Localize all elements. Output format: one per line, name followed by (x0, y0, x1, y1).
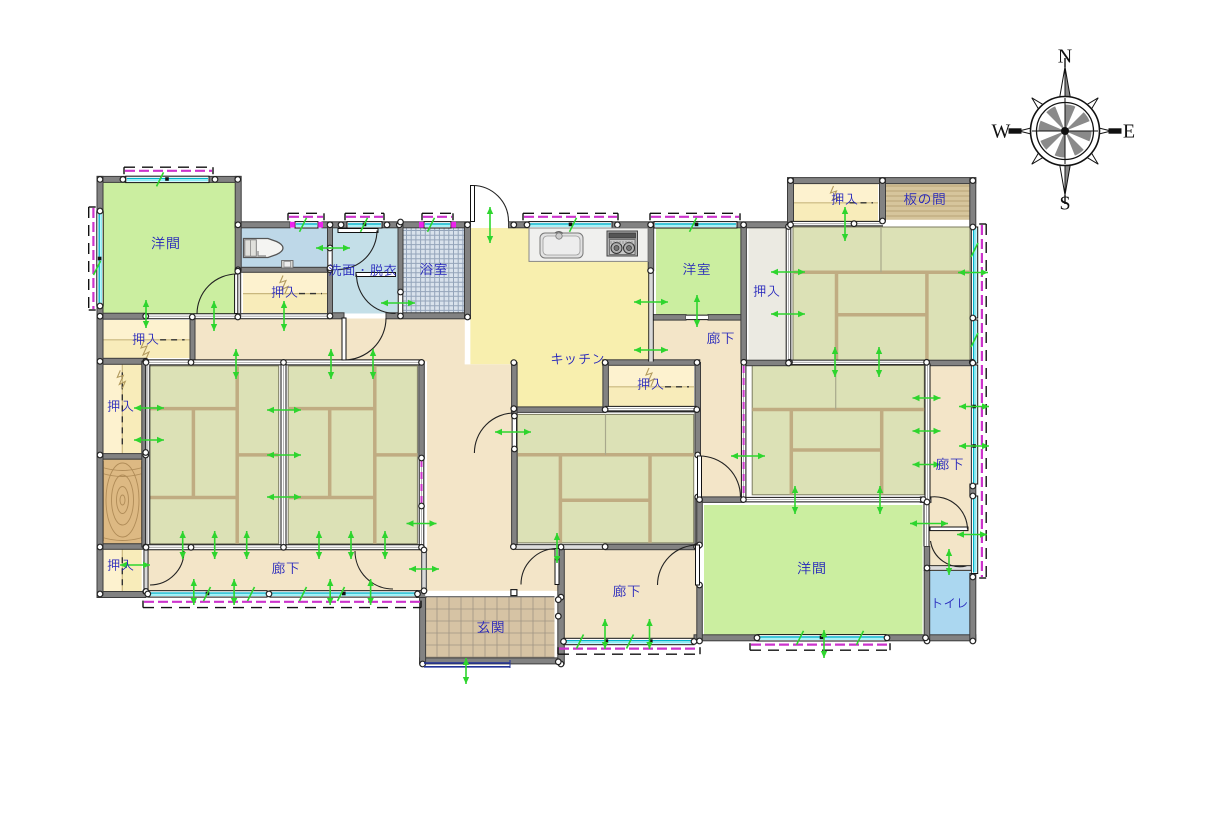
svg-text:S: S (1059, 193, 1070, 215)
svg-text:E: E (1123, 121, 1135, 143)
svg-text:N: N (1058, 46, 1072, 68)
svg-text:W: W (992, 121, 1011, 143)
